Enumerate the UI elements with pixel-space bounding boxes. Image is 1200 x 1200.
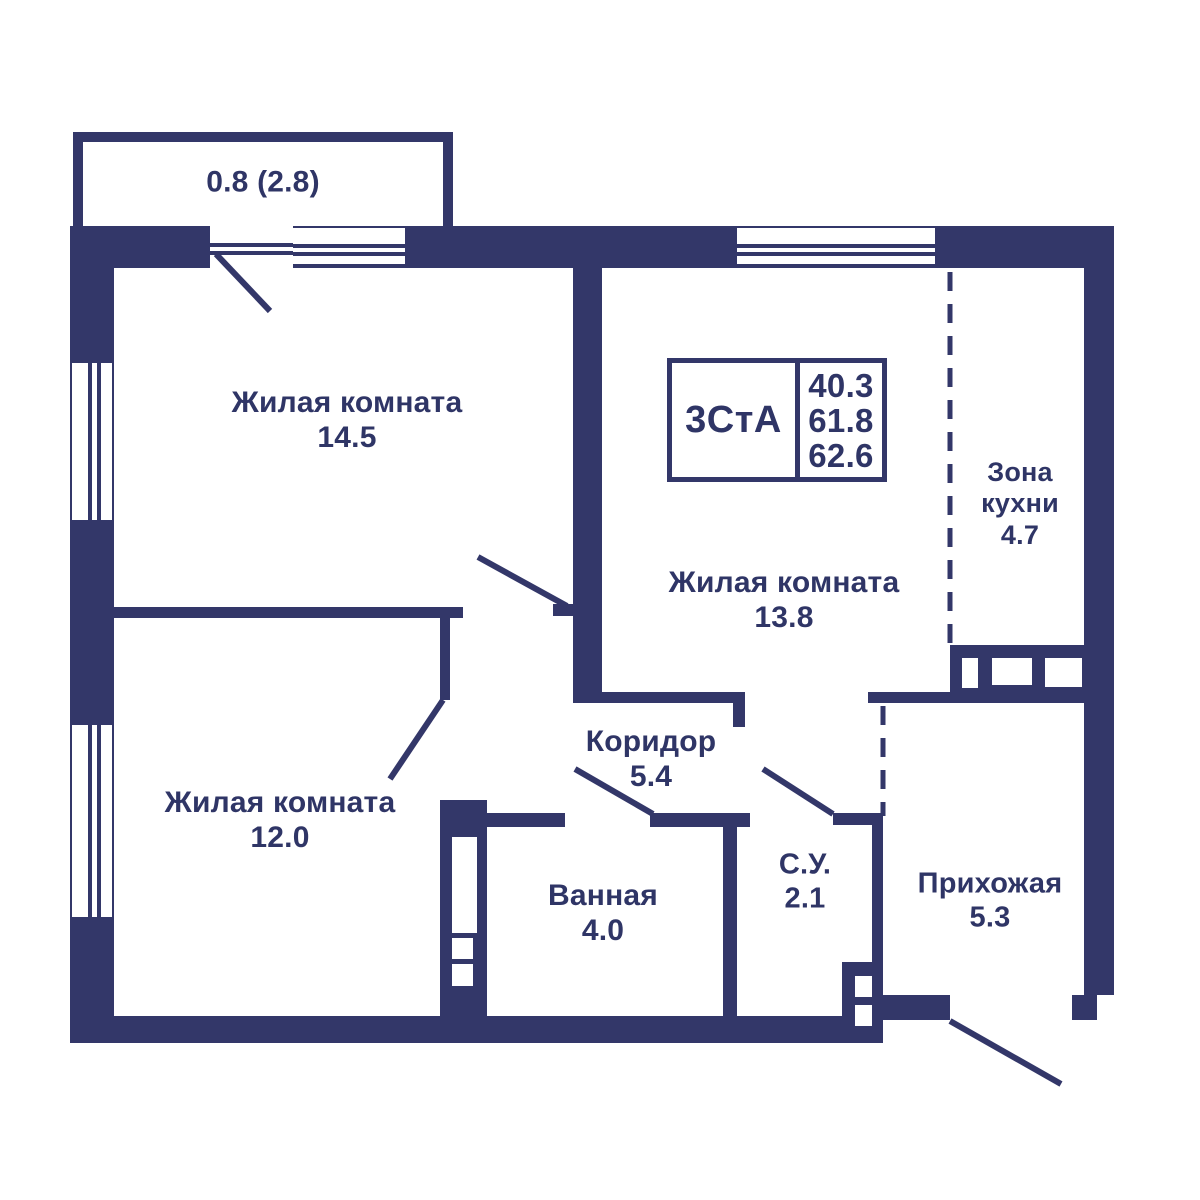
area-living: 40.3	[808, 368, 873, 403]
wall-su-right	[872, 822, 883, 963]
floor-plan: 0.8 (2.8)Жилая комната 14.5Жилая комната…	[0, 0, 1200, 1200]
window-left-2-frame-line-2	[97, 725, 101, 917]
door-swing-entrance	[950, 1021, 1061, 1084]
counter-opening-3	[1045, 658, 1082, 687]
counter-opening-1	[962, 658, 978, 688]
window-top-1-frame-line-2	[293, 252, 405, 256]
window-top-2-frame-line-2	[737, 252, 935, 256]
vent-su-opening-2	[855, 1005, 872, 1026]
vent-left-opening-1	[452, 837, 477, 933]
outer-wall-bottom	[70, 1016, 873, 1043]
window-left-1-frame-line-1	[88, 363, 92, 520]
balcony-door-opening-frame-line-2	[210, 251, 293, 255]
vent-left-opening-3	[452, 964, 473, 986]
wall-bath-top-left	[440, 813, 565, 827]
outer-wall-right-step	[1072, 995, 1097, 1020]
balcony-area-label: 0.8 (2.8)	[206, 166, 320, 201]
door-swing-living1	[478, 557, 567, 606]
room-label-su: С.У. 2.1	[779, 848, 831, 915]
unit-code: 3СтА	[672, 363, 800, 477]
area-total-with-balcony: 62.6	[808, 438, 873, 473]
wall-corridor-stub	[733, 692, 745, 727]
room-label-living-2: Жилая комната 13.8	[669, 566, 900, 636]
unit-areas: 40.3 61.8 62.6	[800, 363, 882, 477]
wall-hall-bottom	[873, 995, 950, 1020]
door-swing-living3	[390, 700, 443, 779]
wall-counter-bottom	[868, 692, 1084, 703]
outer-wall-left	[70, 226, 114, 1043]
wall-corridor-living2	[573, 692, 745, 703]
window-left-2-frame-line-1	[88, 725, 92, 917]
balcony-wall-right	[443, 132, 453, 226]
room-label-bath: Ванная 4.0	[548, 879, 658, 949]
window-left-1-frame-line-2	[97, 363, 101, 520]
vent-left-opening-2	[452, 938, 473, 959]
wall-bath-su	[723, 813, 737, 1017]
balcony-wall-top	[73, 132, 453, 142]
window-top-2-frame-line-1	[737, 244, 935, 248]
unit-info-box: 3СтА 40.3 61.8 62.6	[667, 358, 887, 482]
balcony-door-opening-frame-line-1	[210, 243, 293, 247]
room-label-living-1: Жилая комната 14.5	[232, 386, 463, 456]
vent-su-opening-1	[855, 976, 872, 997]
wall-between-living1-living3	[114, 607, 463, 618]
room-label-living-3: Жилая комната 12.0	[165, 786, 396, 856]
room-label-corridor: Коридор 5.4	[586, 725, 717, 795]
outer-wall-right	[1084, 226, 1114, 995]
wall-living3-corridor	[440, 612, 450, 700]
room-label-kitchen: Зона кухни 4.7	[981, 457, 1059, 551]
balcony-wall-left	[73, 132, 83, 226]
room-label-hall: Прихожая 5.3	[918, 867, 1063, 934]
window-top-1-frame-line-1	[293, 244, 405, 248]
door-swing-su	[763, 769, 833, 814]
plan-walls-drawing	[0, 0, 1200, 1200]
area-total: 61.8	[808, 403, 873, 438]
wall-between-living1-living2	[573, 268, 602, 703]
counter-opening-2	[992, 658, 1032, 685]
